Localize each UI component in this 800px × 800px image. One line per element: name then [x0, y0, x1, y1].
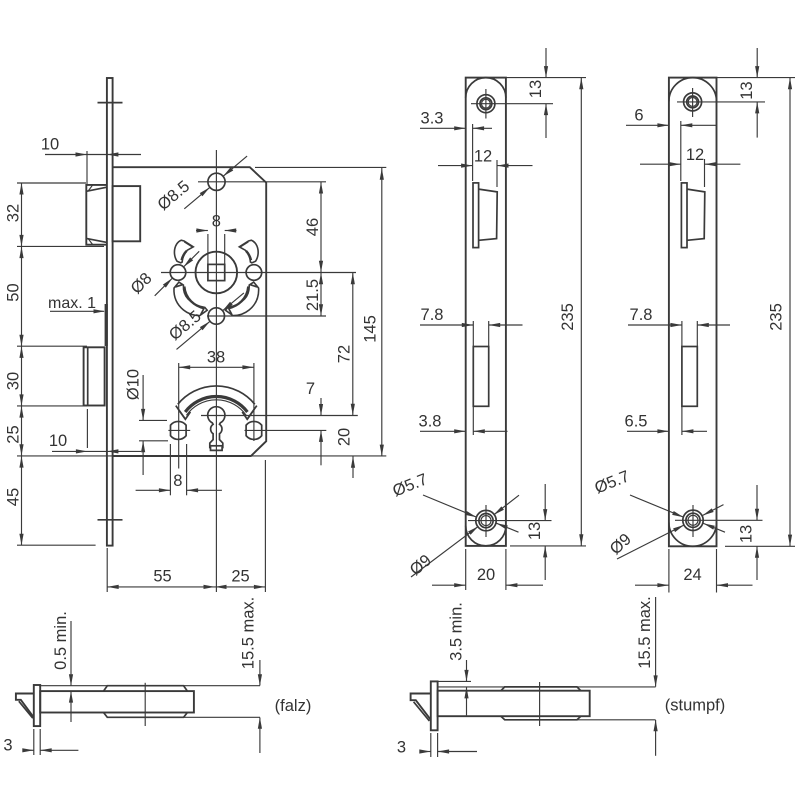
svg-text:38: 38 — [207, 348, 225, 366]
svg-text:10: 10 — [49, 432, 67, 450]
svg-text:8: 8 — [173, 472, 182, 490]
svg-text:15.5 max.: 15.5 max. — [239, 597, 257, 669]
svg-text:6.5: 6.5 — [625, 412, 648, 430]
svg-text:20: 20 — [477, 566, 495, 584]
svg-text:45: 45 — [4, 488, 22, 506]
svg-text:0.5 min.: 0.5 min. — [52, 611, 70, 670]
svg-text:3.5 min.: 3.5 min. — [447, 602, 465, 661]
svg-text:46: 46 — [304, 218, 322, 236]
svg-text:20: 20 — [336, 428, 354, 446]
svg-text:7: 7 — [306, 380, 315, 398]
svg-text:235: 235 — [559, 303, 577, 331]
svg-text:25: 25 — [231, 567, 249, 585]
svg-text:7.8: 7.8 — [421, 306, 444, 324]
svg-text:8: 8 — [212, 213, 221, 231]
svg-text:6: 6 — [634, 106, 643, 124]
svg-text:55: 55 — [153, 567, 171, 585]
svg-text:30: 30 — [4, 372, 22, 390]
svg-text:21.5: 21.5 — [304, 279, 322, 311]
svg-text:13: 13 — [526, 522, 544, 540]
svg-text:13: 13 — [527, 80, 545, 98]
svg-text:7.8: 7.8 — [630, 306, 653, 324]
svg-text:Ø10: Ø10 — [125, 369, 143, 400]
svg-text:24: 24 — [683, 566, 701, 584]
svg-text:3.8: 3.8 — [419, 412, 442, 430]
svg-text:13: 13 — [738, 525, 756, 543]
svg-text:15.5 max.: 15.5 max. — [636, 596, 654, 668]
svg-text:12: 12 — [474, 147, 492, 165]
svg-text:25: 25 — [4, 425, 22, 443]
svg-text:3.3: 3.3 — [421, 109, 444, 127]
svg-text:3: 3 — [3, 737, 12, 755]
svg-text:(stumpf): (stumpf) — [665, 697, 726, 715]
svg-text:32: 32 — [4, 204, 22, 222]
svg-text:max. 1: max. 1 — [48, 295, 96, 312]
svg-text:50: 50 — [4, 283, 22, 301]
svg-text:145: 145 — [362, 315, 380, 343]
svg-text:12: 12 — [686, 146, 704, 164]
svg-text:13: 13 — [738, 81, 756, 99]
svg-text:72: 72 — [336, 345, 354, 363]
svg-text:3: 3 — [397, 739, 406, 757]
svg-text:235: 235 — [768, 303, 786, 331]
svg-text:10: 10 — [41, 136, 59, 154]
svg-text:(falz): (falz) — [275, 697, 312, 715]
